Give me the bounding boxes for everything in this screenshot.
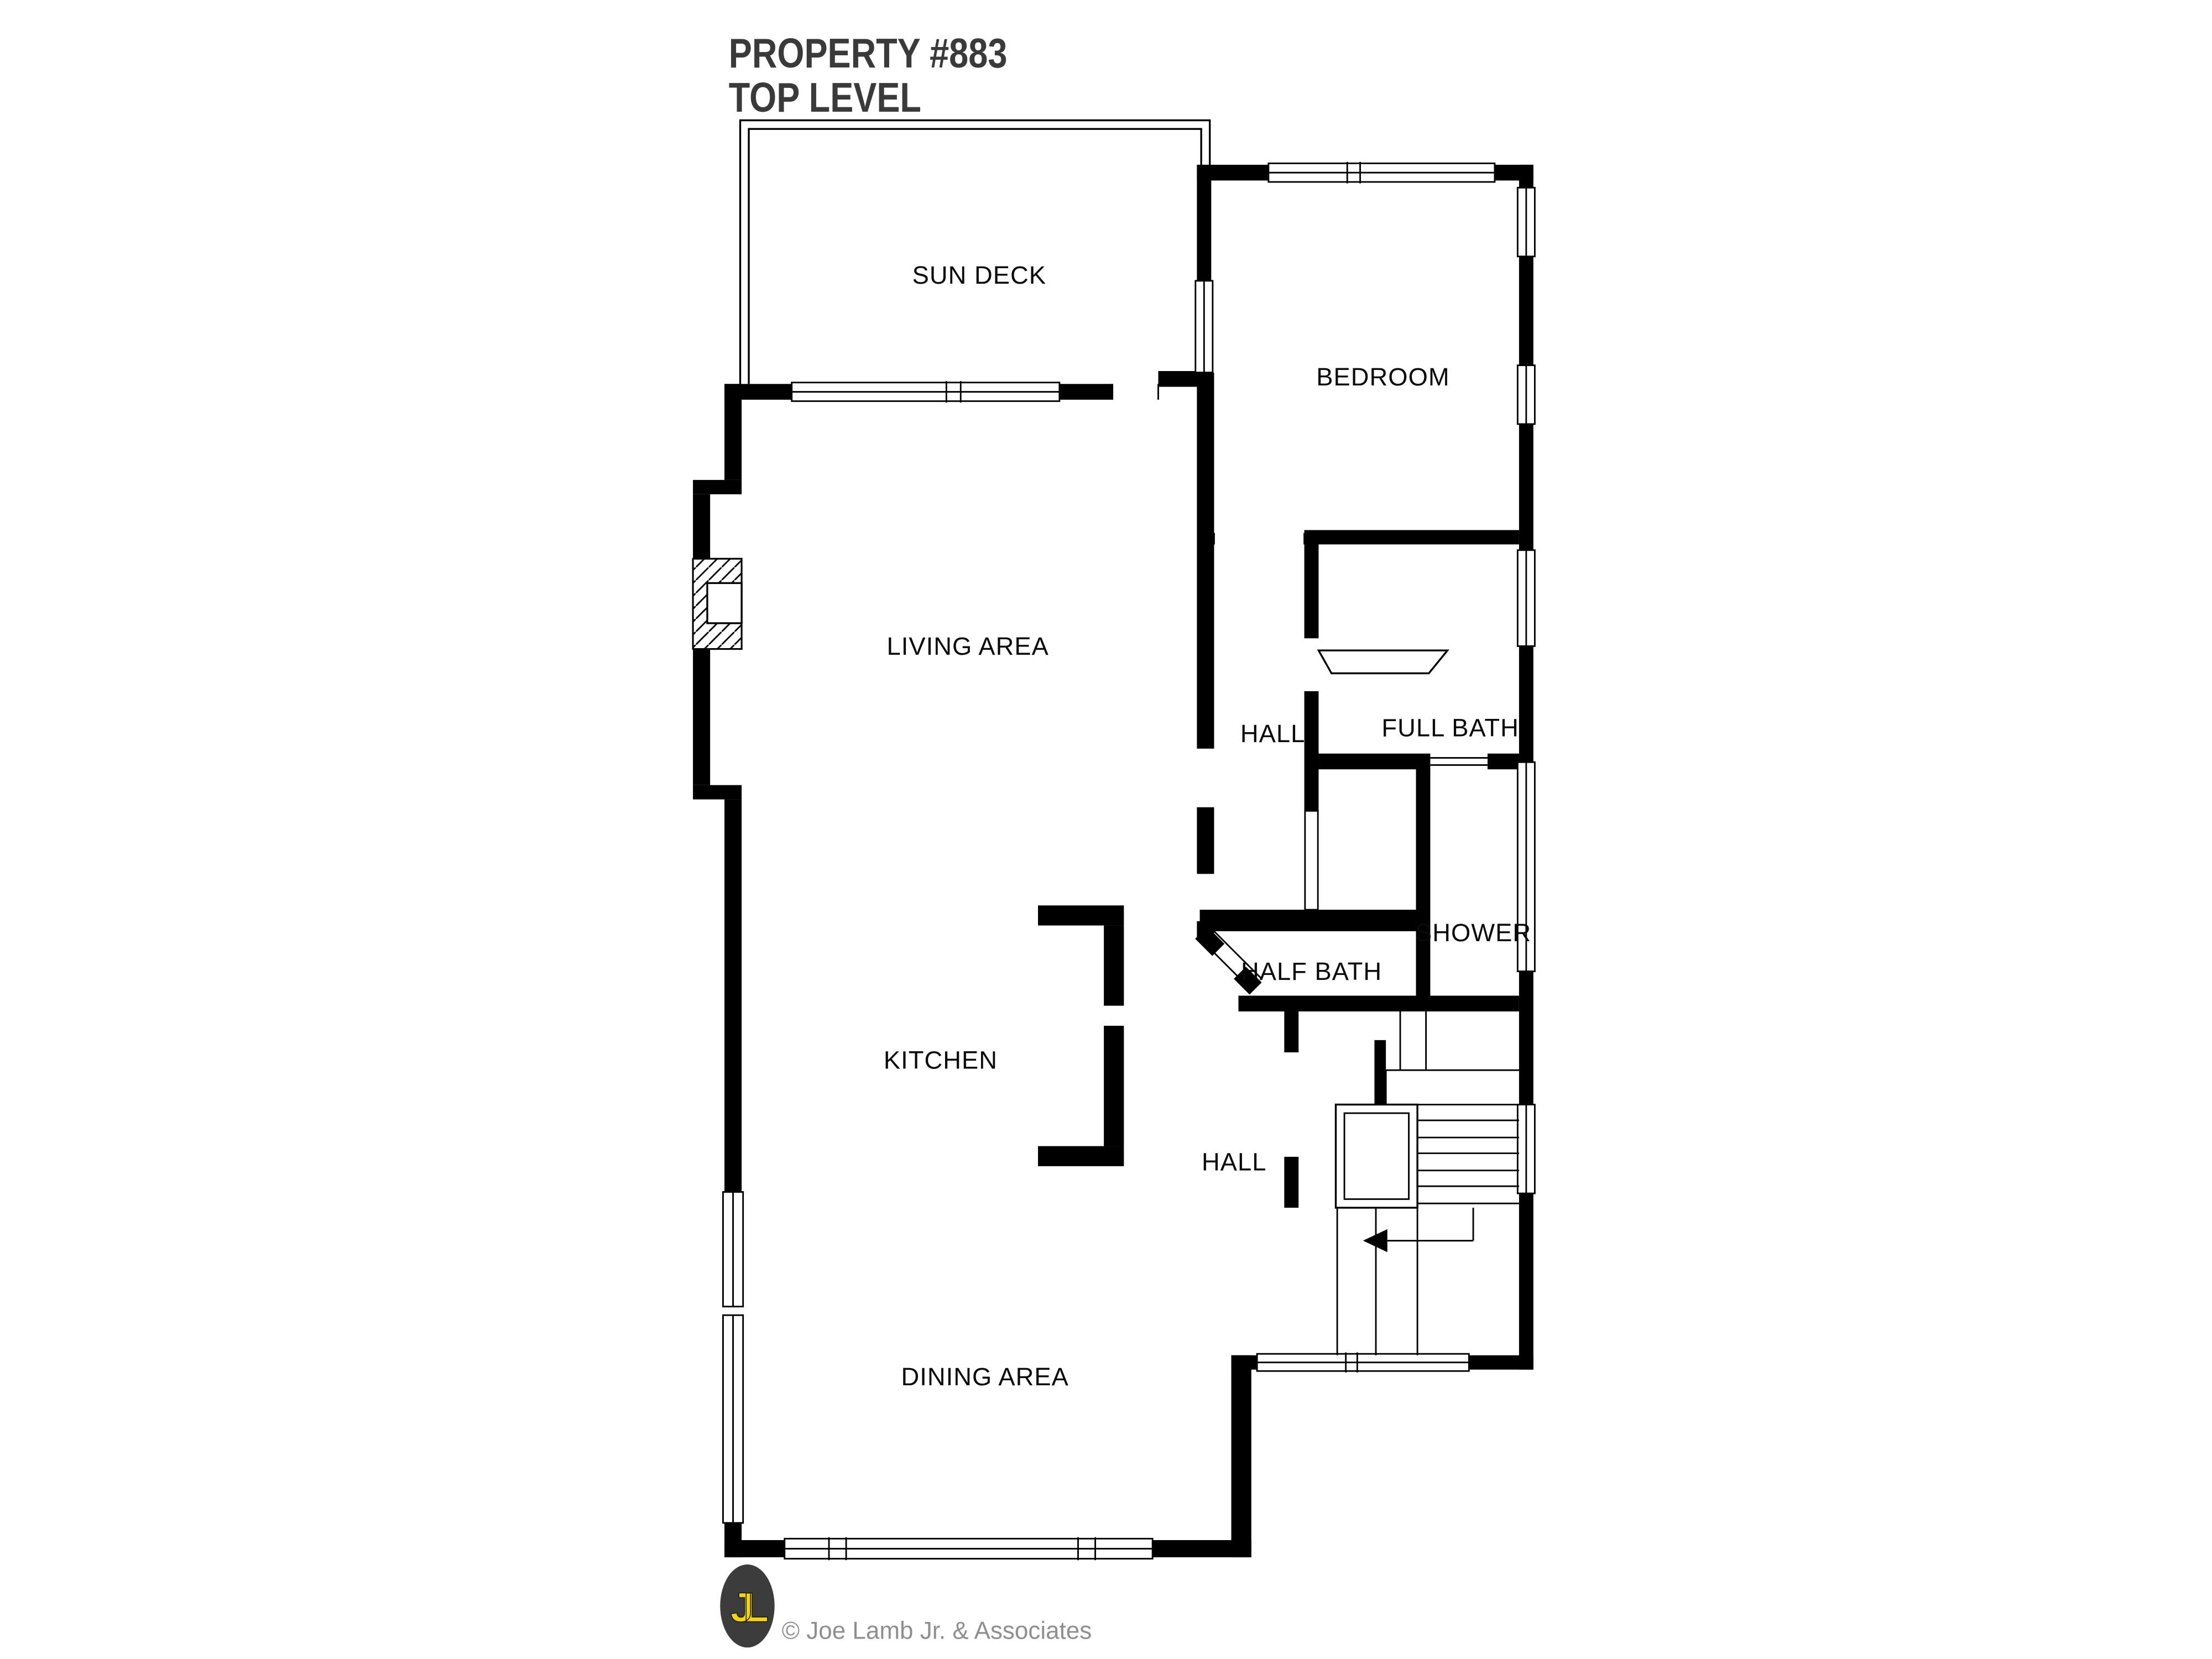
title-line-2: TOP LEVEL bbox=[729, 74, 921, 121]
door-openings bbox=[1113, 384, 1488, 1157]
stairwell-void bbox=[1336, 1104, 1418, 1208]
room-label-hall: HALL bbox=[1240, 719, 1305, 748]
room-label-shower: SHOWER bbox=[1415, 919, 1531, 947]
room-label-kitchen: KITCHEN bbox=[884, 1046, 998, 1074]
title-line-1: PROPERTY #883 bbox=[729, 30, 1008, 76]
page-title: PROPERTY #883 TOP LEVEL bbox=[729, 30, 1008, 121]
fireplace bbox=[693, 559, 742, 649]
room-label-full-bath: FULL BATH bbox=[1381, 714, 1519, 742]
brand-logo: JL bbox=[720, 1564, 774, 1647]
room-label-living-area: LIVING AREA bbox=[886, 632, 1048, 660]
room-label-bedroom: BEDROOM bbox=[1316, 363, 1449, 391]
floor-plan-canvas: PROPERTY #883 TOP LEVEL bbox=[0, 0, 2212, 1659]
room-label-half-bath: HALF BATH bbox=[1241, 957, 1382, 985]
room-label-dining-area: DINING AREA bbox=[901, 1363, 1069, 1391]
copyright-text: © Joe Lamb Jr. & Associates bbox=[782, 1618, 1092, 1645]
room-label-hall: HALL bbox=[1202, 1148, 1266, 1176]
room-label-sun-deck: SUN DECK bbox=[912, 261, 1046, 289]
bathtub bbox=[1318, 650, 1447, 673]
staircase bbox=[1336, 1011, 1519, 1355]
kitchen-counter bbox=[1038, 905, 1124, 1166]
firebox bbox=[707, 583, 742, 623]
sun-deck-railing bbox=[740, 121, 1210, 384]
